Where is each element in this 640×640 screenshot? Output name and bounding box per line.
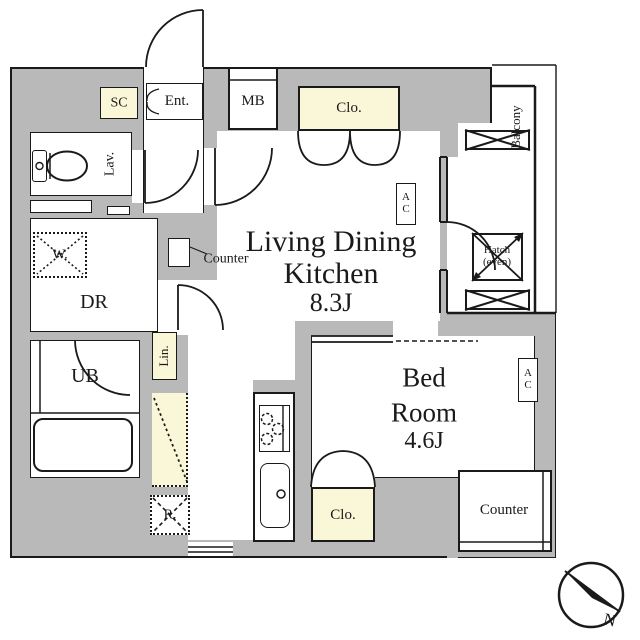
compass-needle-icon bbox=[565, 571, 620, 612]
kitchen-sink bbox=[260, 463, 290, 528]
bedroom-size-label: 4.6J bbox=[404, 429, 443, 455]
floor-balcony-2 bbox=[458, 123, 492, 313]
floor-bedroom-closet-bay bbox=[311, 336, 375, 487]
ac-ldk-label: A C bbox=[402, 192, 410, 216]
compass-circle-icon bbox=[559, 563, 623, 627]
storage-box bbox=[152, 393, 188, 487]
ldk-label-line1: Living Dining bbox=[246, 226, 417, 258]
counter-kitchen-label: Counter bbox=[203, 251, 248, 266]
floor-corridor-dr bbox=[158, 280, 217, 335]
compass-north-label: N bbox=[602, 609, 619, 630]
hatch-label: Hatch (even) bbox=[483, 245, 511, 269]
lavatory-shelf bbox=[30, 200, 92, 213]
balcony-label: Balcony bbox=[509, 105, 523, 148]
floor-opening-ldk-bedroom bbox=[393, 321, 438, 336]
floor-plan: N SC Ent. MB Clo. Lav. W. DR UB Lin. R. … bbox=[0, 0, 640, 640]
floor-balcony-3 bbox=[447, 157, 458, 313]
bedroom-label-line2: Room bbox=[391, 398, 457, 427]
unit-bath-label: UB bbox=[71, 366, 99, 388]
bathtub bbox=[33, 418, 133, 472]
wall-top-right-corner bbox=[437, 67, 492, 123]
entrance-door-arc bbox=[146, 10, 203, 67]
lavatory-label: Lav. bbox=[102, 152, 117, 176]
stove bbox=[259, 405, 290, 452]
ac-bedroom-letter-c: C bbox=[524, 380, 532, 392]
doorway-ldk bbox=[204, 148, 217, 205]
window-bottom bbox=[188, 542, 233, 556]
doorway-lavatory bbox=[132, 150, 143, 203]
washer-label: W. bbox=[52, 247, 67, 262]
refrigerator-label: R. bbox=[164, 507, 177, 522]
bedroom-label-line1: Bed bbox=[402, 363, 446, 392]
ldk-label-line2: Kitchen bbox=[284, 258, 379, 290]
compass-needle-line bbox=[565, 571, 620, 612]
ac-ldk-letter-c: C bbox=[402, 204, 410, 216]
wall-niche bbox=[107, 206, 130, 215]
closet-top-label: Clo. bbox=[336, 100, 361, 116]
floor-kitchen-corridor bbox=[188, 332, 253, 540]
hatch-label-line2: (even) bbox=[483, 257, 511, 269]
counter-bedroom-label: Counter bbox=[480, 502, 528, 518]
counter-niche bbox=[168, 238, 190, 267]
balcony-equipment-box-bottom bbox=[465, 290, 530, 310]
ac-bedroom-label: A C bbox=[524, 368, 532, 392]
shoe-cabinet-label: SC bbox=[110, 95, 127, 110]
linen-label: Lin. bbox=[157, 345, 171, 366]
toilet-tank bbox=[32, 150, 47, 182]
entrance-label: Ent. bbox=[165, 93, 190, 109]
meter-box-label: MB bbox=[241, 93, 264, 109]
dressing-room-label: DR bbox=[80, 292, 108, 314]
ldk-size-label: 8.3J bbox=[310, 289, 353, 317]
wall-step bbox=[437, 123, 458, 157]
closet-bedroom-label: Clo. bbox=[330, 507, 355, 523]
